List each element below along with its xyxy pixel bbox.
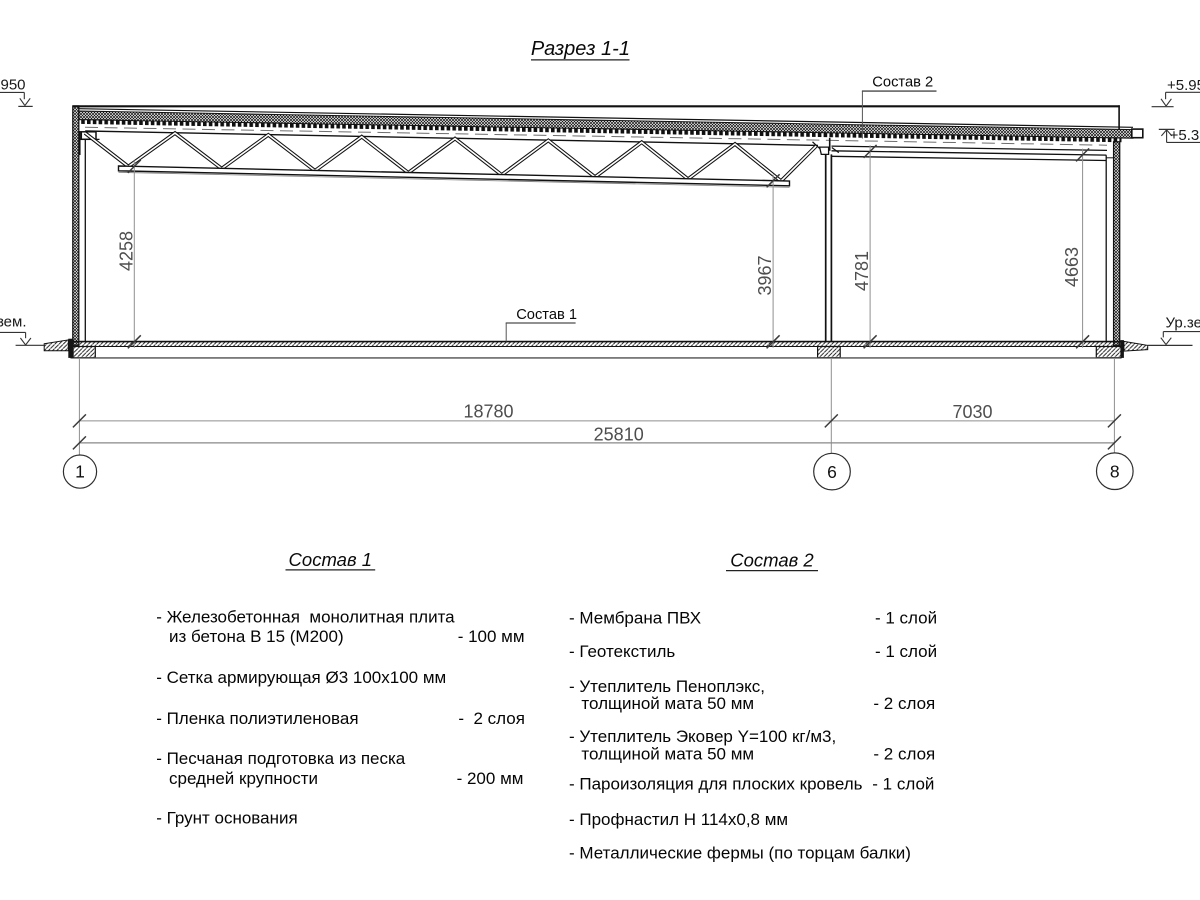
svg-text:+5.950: +5.950 (1167, 77, 1200, 94)
svg-text:1: 1 (75, 462, 85, 482)
svg-text:- 2 слоя: - 2 слоя (873, 745, 935, 764)
svg-text:- Пленка полиэтиленовая: - Пленка полиэтиленовая (156, 709, 358, 728)
svg-text:Разрез 1-1: Разрез 1-1 (531, 38, 630, 60)
svg-text:- 2 слоя: - 2 слоя (873, 694, 935, 713)
svg-text:толщиной мата 50 мм: толщиной мата 50 мм (581, 745, 754, 764)
svg-text:4663: 4663 (1062, 247, 1082, 287)
svg-text:- Пароизоляция для плоских кро: - Пароизоляция для плоских кровель (569, 774, 863, 793)
svg-text:18780: 18780 (463, 401, 513, 421)
svg-text:6: 6 (827, 462, 837, 482)
svg-text:- Песчаная подготовка из песка: - Песчаная подготовка из песка (156, 749, 406, 768)
svg-text:Состав 2: Состав 2 (730, 549, 814, 570)
svg-text:- Профнастил Н 114х0,8 мм: - Профнастил Н 114х0,8 мм (569, 810, 788, 829)
svg-text:8: 8 (1110, 462, 1120, 482)
svg-text:Состав 2: Состав 2 (872, 75, 933, 91)
svg-text:Состав 1: Состав 1 (289, 549, 372, 570)
svg-text:- Металлические фермы (по торц: - Металлические фермы (по торцам балки) (569, 844, 911, 863)
svg-text:средней крупности: средней крупности (169, 769, 318, 788)
svg-text:Ур.зем.: Ур.зем. (1166, 315, 1200, 332)
svg-text:- Железобетонная монолитная п: - Железобетонная монолитная плита (156, 607, 455, 626)
svg-text:Состав 1: Состав 1 (516, 307, 577, 323)
svg-text:- 100 мм: - 100 мм (458, 627, 525, 646)
svg-text:- 1 слой: - 1 слой (872, 774, 934, 793)
svg-text:4258: 4258 (116, 231, 136, 271)
svg-text:толщиной мата 50 мм: толщиной мата 50 мм (581, 694, 754, 713)
svg-text:- 2 слоя: - 2 слоя (458, 709, 525, 728)
svg-text:Ур.зем.: Ур.зем. (0, 314, 27, 331)
svg-text:+5.380: +5.380 (1170, 127, 1200, 144)
svg-text:- 200 мм: - 200 мм (457, 769, 524, 788)
svg-text:- Сетка армирующая Ø3 100х100: - Сетка армирующая Ø3 100х100 мм (156, 668, 446, 687)
svg-text:из бетона В 15 (М200): из бетона В 15 (М200) (169, 627, 344, 646)
svg-text:- Мембрана ПВХ: - Мембрана ПВХ (569, 608, 701, 627)
svg-text:- Грунт основания: - Грунт основания (156, 809, 297, 828)
svg-text:- Утеплитель Эковер Y=100 кг/м: - Утеплитель Эковер Y=100 кг/м3, (569, 727, 836, 746)
svg-text:3967: 3967 (755, 255, 775, 295)
svg-text:- 1 слой: - 1 слой (875, 608, 937, 627)
svg-text:7030: 7030 (952, 402, 992, 422)
svg-text:- 1 слой: - 1 слой (875, 642, 937, 661)
svg-text:25810: 25810 (594, 424, 644, 444)
svg-text:4781: 4781 (852, 251, 872, 291)
svg-text:- Геотекстиль: - Геотекстиль (569, 642, 675, 661)
svg-text:+5.950: +5.950 (0, 77, 26, 94)
